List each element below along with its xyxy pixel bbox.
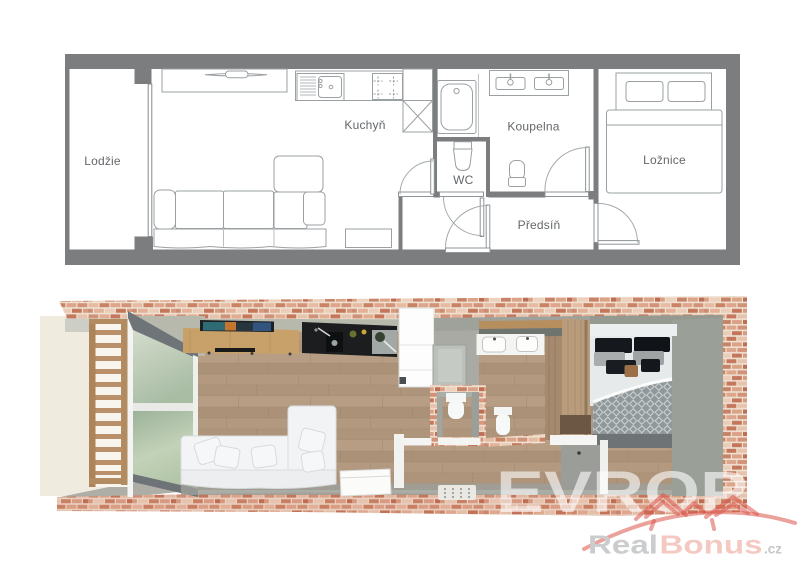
svg-text:Ložnice: Ložnice	[643, 153, 686, 167]
svg-text:Kuchyň: Kuchyň	[344, 118, 385, 132]
svg-text:Bonus: Bonus	[660, 530, 763, 560]
svg-text:Koupelna: Koupelna	[507, 120, 559, 134]
svg-text:.cz: .cz	[764, 542, 782, 557]
svg-text:Předsíň: Předsíň	[518, 218, 561, 232]
svg-text:Lodžie: Lodžie	[84, 154, 121, 168]
svg-text:WC: WC	[453, 173, 474, 187]
svg-text:Real: Real	[588, 530, 658, 560]
